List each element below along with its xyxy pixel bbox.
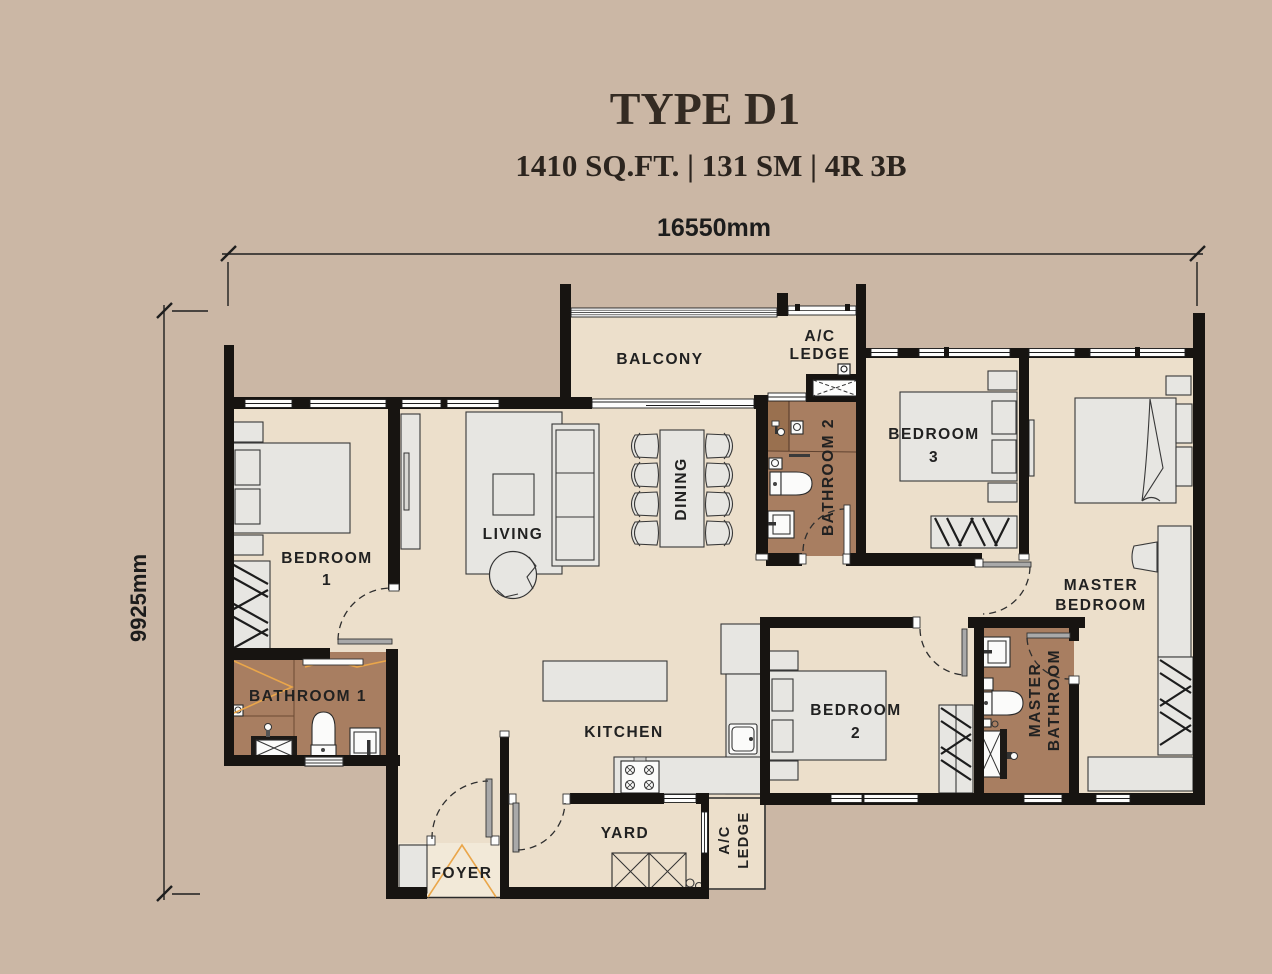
svg-text:MASTER: MASTER: [1027, 663, 1044, 737]
svg-text:3: 3: [929, 449, 939, 466]
svg-text:BEDROOM: BEDROOM: [281, 550, 372, 567]
svg-text:MASTER: MASTER: [1064, 577, 1138, 594]
svg-text:1: 1: [322, 572, 332, 589]
svg-text:A/C: A/C: [804, 328, 835, 345]
svg-text:BEDROOM: BEDROOM: [810, 702, 901, 719]
svg-text:9925mm: 9925mm: [126, 554, 151, 642]
svg-text:LEDGE: LEDGE: [736, 811, 752, 868]
svg-text:BEDROOM: BEDROOM: [888, 426, 979, 443]
svg-text:FOYER: FOYER: [432, 865, 493, 882]
svg-text:DINING: DINING: [673, 457, 690, 520]
svg-text:A/C: A/C: [717, 825, 733, 854]
svg-text:2: 2: [851, 725, 861, 742]
svg-text:BATHROOM: BATHROOM: [1046, 649, 1063, 751]
svg-text:BEDROOM: BEDROOM: [1055, 597, 1146, 614]
svg-text:TYPE D1: TYPE D1: [610, 83, 800, 134]
svg-text:KITCHEN: KITCHEN: [584, 724, 663, 741]
svg-text:BATHROOM 1: BATHROOM 1: [249, 688, 367, 705]
svg-text:16550mm: 16550mm: [657, 214, 771, 242]
svg-text:BATHROOM 2: BATHROOM 2: [820, 418, 837, 536]
svg-text:1410 SQ.FT. | 131 SM | 4R 3B: 1410 SQ.FT. | 131 SM | 4R 3B: [515, 148, 906, 183]
svg-text:BALCONY: BALCONY: [616, 351, 703, 368]
svg-text:LIVING: LIVING: [483, 526, 544, 543]
svg-text:LEDGE: LEDGE: [790, 346, 851, 363]
svg-text:YARD: YARD: [601, 825, 650, 842]
